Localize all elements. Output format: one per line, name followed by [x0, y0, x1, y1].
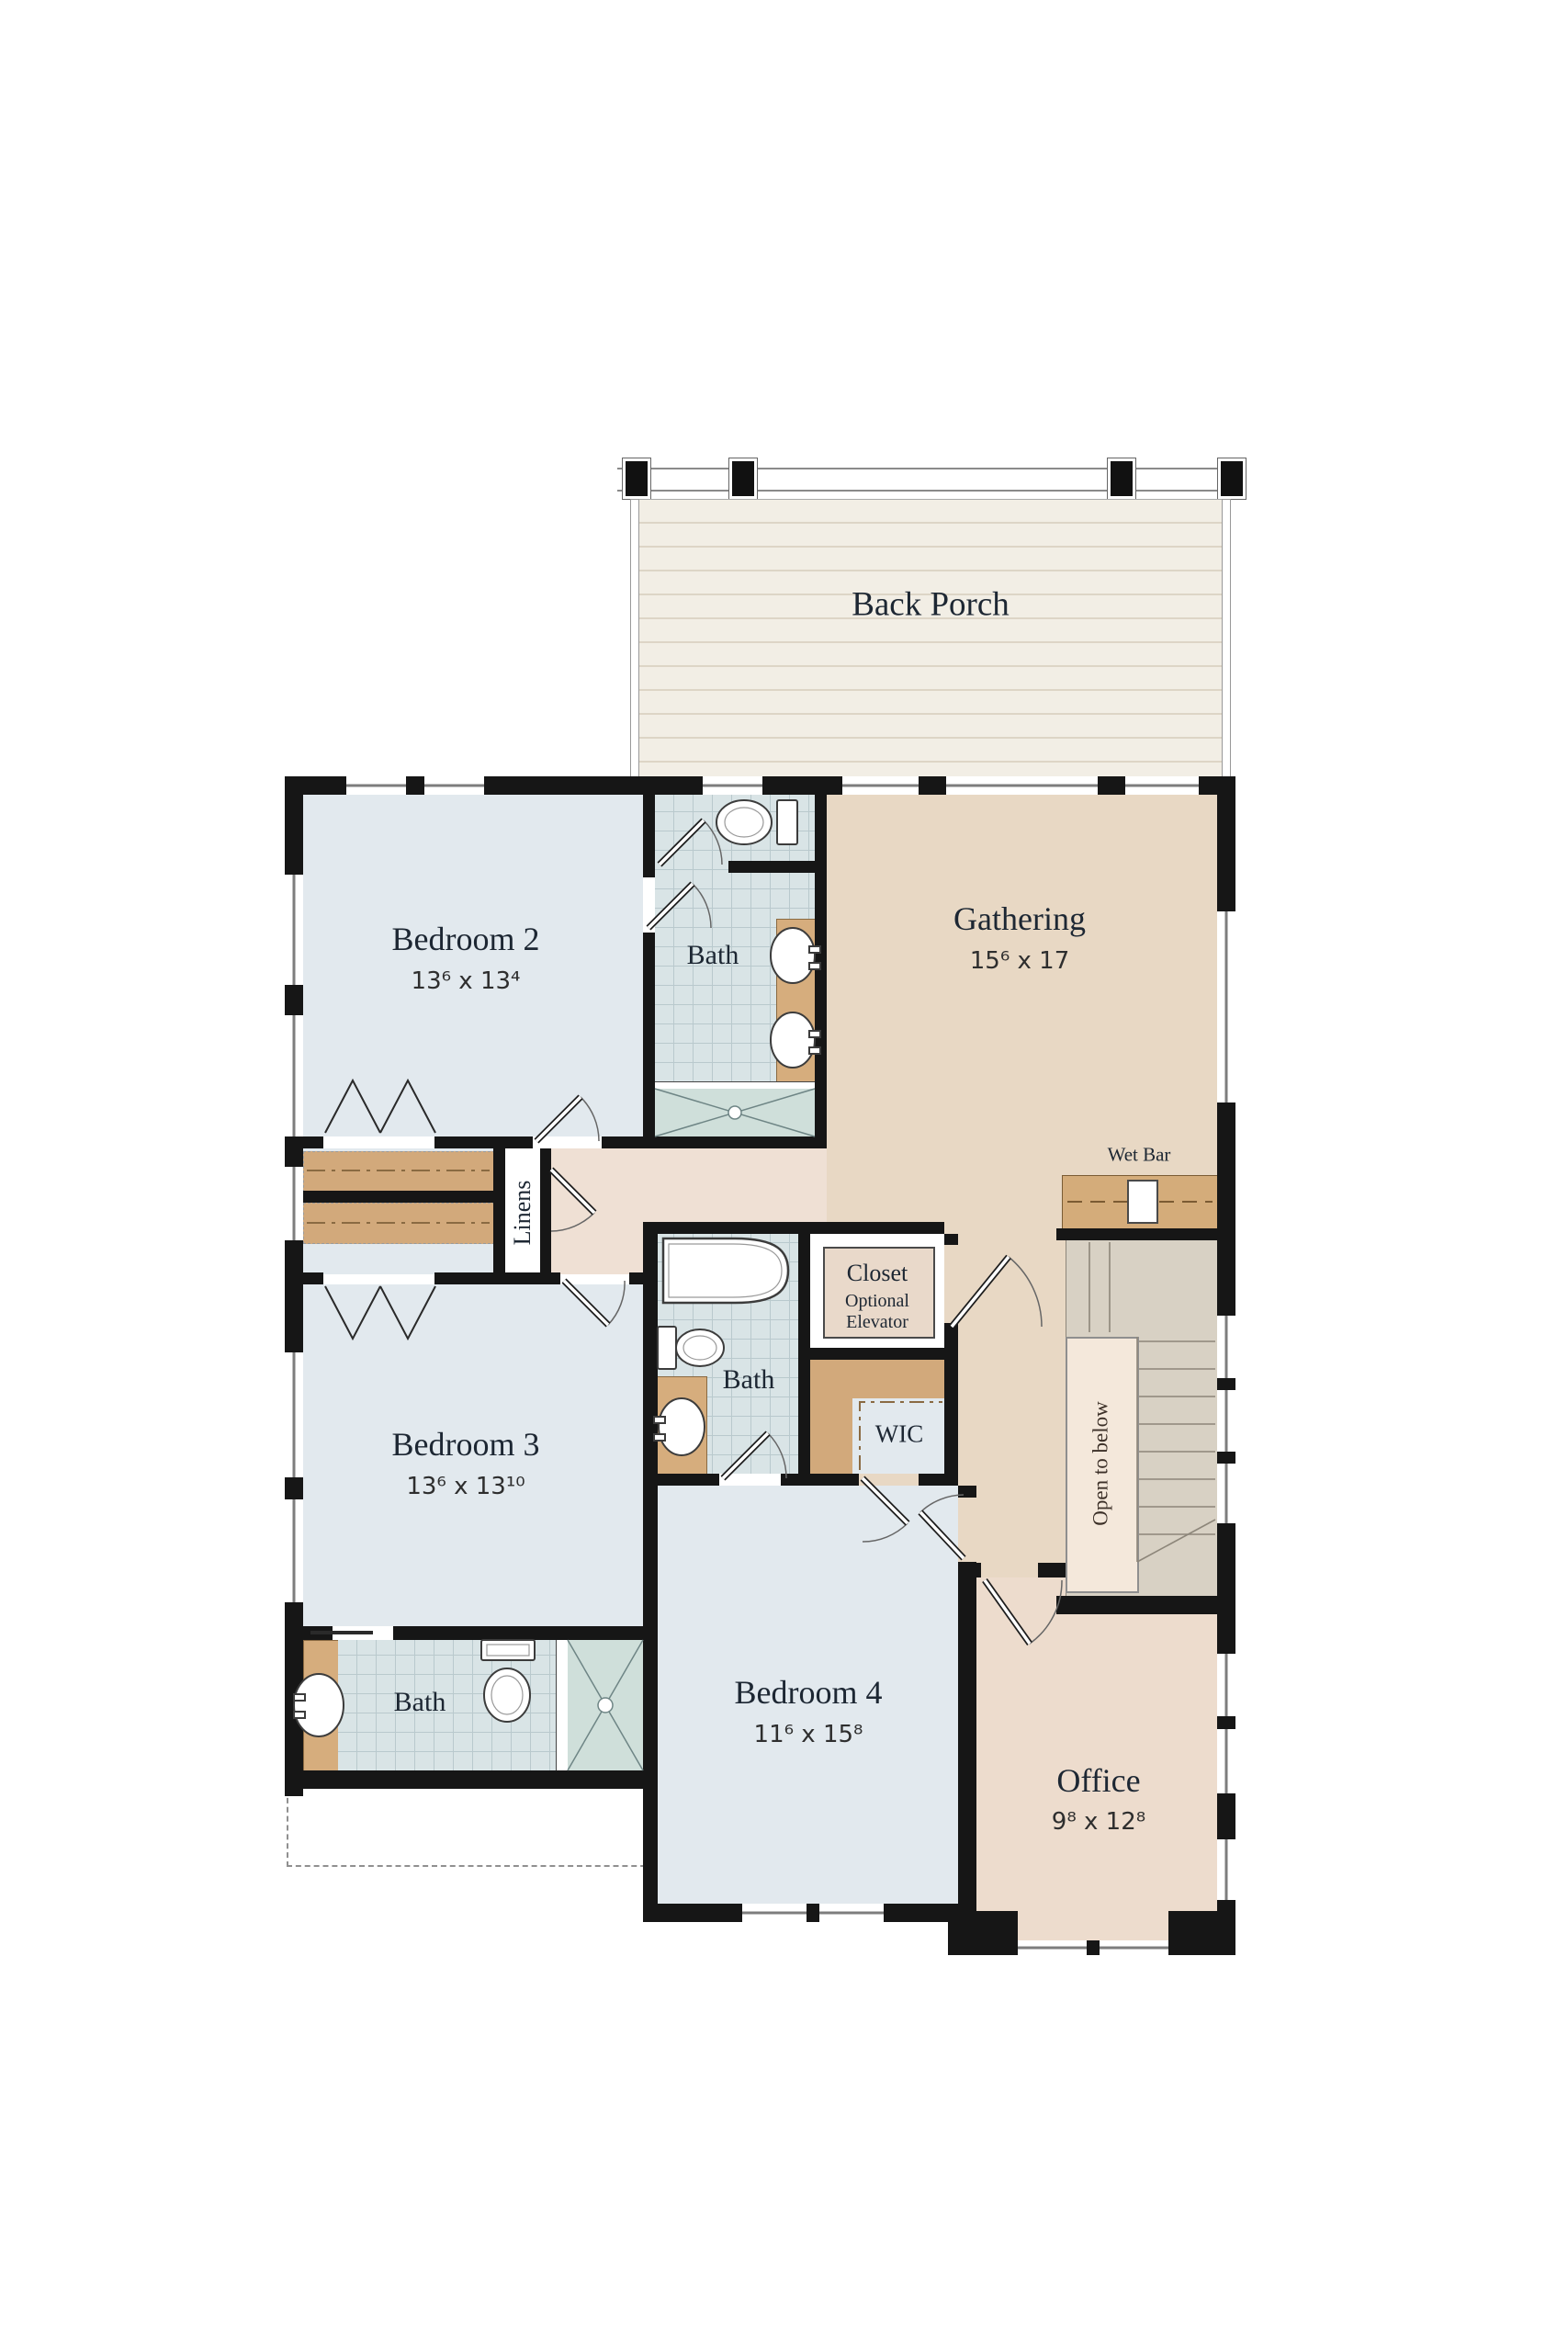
- window: [703, 776, 762, 795]
- wall-segment: [958, 1563, 981, 1577]
- wall-segment: [810, 1348, 944, 1360]
- wall-segment: [798, 1234, 810, 1474]
- porch-post: [729, 458, 757, 499]
- window: [285, 1015, 303, 1139]
- wall-segment: [406, 776, 424, 795]
- wall-segment: [393, 1626, 655, 1640]
- wall-segment: [1087, 1940, 1100, 1955]
- window: [1125, 776, 1199, 795]
- bath-middle-label: Bath: [723, 1366, 775, 1394]
- wall-segment: [1038, 1563, 1066, 1577]
- window: [346, 776, 406, 795]
- wall-segment: [643, 933, 655, 1136]
- wall-segment: [643, 1222, 944, 1234]
- wall-segment: [602, 1136, 827, 1148]
- wall-segment: [728, 861, 827, 873]
- wall-segment: [1168, 1911, 1235, 1955]
- bath-upper-label: Bath: [687, 942, 739, 969]
- bath-upper-vanity: [776, 919, 817, 1083]
- back-porch-label: Back Porch: [852, 588, 1010, 622]
- wic-label: WIC: [875, 1422, 923, 1447]
- window: [1018, 1940, 1087, 1955]
- wall-segment: [285, 1626, 333, 1640]
- window: [285, 1167, 303, 1240]
- wall-segment: [1217, 1452, 1235, 1464]
- wall-segment: [285, 985, 303, 1015]
- open-to-below-label: Open to below: [1090, 1401, 1111, 1525]
- wall-segment: [944, 1234, 958, 1245]
- hall: [551, 1148, 827, 1222]
- window: [819, 1904, 884, 1922]
- wall-segment: [303, 1191, 493, 1203]
- wet-bar-label: Wet Bar: [1108, 1146, 1171, 1165]
- bath-middle-vanity: [655, 1376, 707, 1476]
- wall-segment: [434, 1272, 560, 1284]
- window: [285, 1499, 303, 1602]
- bedroom2-dims: 13⁶ x 13⁴: [412, 969, 521, 993]
- porch-rail-right: [1222, 499, 1231, 778]
- wall-segment: [285, 1477, 303, 1499]
- wall-segment: [658, 1474, 719, 1486]
- bedroom4-dims: 11⁶ x 15⁸: [754, 1723, 863, 1747]
- wall-segment: [285, 776, 303, 875]
- wall-segment: [484, 776, 595, 795]
- wall-segment: [493, 1148, 505, 1274]
- wall-segment: [1217, 1238, 1235, 1316]
- closet-note-line2: Elevator: [846, 1313, 908, 1331]
- wall-segment: [643, 795, 655, 877]
- wall-segment: [285, 1770, 655, 1789]
- hall: [551, 1222, 643, 1274]
- wic-shelf: [852, 1360, 944, 1398]
- bath-lower-floor: [338, 1640, 556, 1770]
- window: [1217, 1316, 1235, 1378]
- window: [1217, 911, 1235, 1102]
- gathering-label: Gathering: [953, 902, 1086, 935]
- wall-segment: [285, 1136, 323, 1148]
- bedroom2-closet-rod: [303, 1151, 495, 1193]
- bath-lower-shower: [568, 1640, 643, 1770]
- wall-segment: [285, 1240, 303, 1352]
- wall-segment: [807, 1904, 819, 1922]
- wall-segment: [919, 776, 946, 795]
- bath-lower-vanity: [303, 1640, 340, 1772]
- wall-segment: [540, 1148, 551, 1274]
- wall-segment: [762, 776, 842, 795]
- pocket-door-opening: [333, 1626, 393, 1640]
- roof-outline-dashed: [287, 1789, 655, 1867]
- office-room: [976, 1577, 1217, 1940]
- office-label: Office: [1056, 1764, 1140, 1797]
- linens-label: Linens: [511, 1181, 535, 1246]
- wall-segment: [815, 795, 827, 1136]
- window: [1217, 1390, 1235, 1452]
- wall-segment: [1056, 1228, 1217, 1240]
- wall-segment: [1217, 1793, 1235, 1839]
- wall-segment: [958, 1486, 976, 1498]
- wall-segment: [1217, 1716, 1235, 1729]
- closet-label: Closet: [847, 1261, 908, 1285]
- floor-plan: Back Porch Bedroom 2 13⁶ x 13⁴ Bath Gath…: [0, 0, 1568, 2352]
- bedroom3-dims: 13⁶ x 13¹⁰: [406, 1475, 525, 1498]
- porch-rail-left: [630, 499, 639, 778]
- wall-segment: [1217, 1102, 1235, 1238]
- wic-shelf: [810, 1360, 852, 1474]
- porch-beam: [617, 468, 1246, 492]
- wall-segment: [1056, 1596, 1235, 1614]
- bath-upper-shower: [655, 1089, 815, 1136]
- wall-segment: [1098, 776, 1125, 795]
- window: [1217, 1839, 1235, 1900]
- wall-segment: [1217, 776, 1235, 911]
- wet-bar-counter: [1062, 1175, 1219, 1230]
- window: [1217, 1729, 1235, 1793]
- closet-note-line1: Optional: [845, 1292, 909, 1310]
- wall-segment: [1217, 1378, 1235, 1390]
- office-dims: 9⁸ x 12⁸: [1052, 1810, 1145, 1834]
- bedroom3-label: Bedroom 3: [392, 1428, 540, 1461]
- wall-segment: [958, 1562, 976, 1955]
- window: [1217, 1464, 1235, 1523]
- window: [1217, 1654, 1235, 1716]
- porch-post: [623, 458, 650, 499]
- bedroom2-room: [303, 795, 643, 1136]
- bedroom2-label: Bedroom 2: [392, 922, 540, 955]
- bedroom3-closet-rod: [303, 1203, 495, 1244]
- window: [424, 776, 484, 795]
- wall-segment: [944, 1323, 958, 1486]
- bath-lower-label: Bath: [394, 1689, 446, 1716]
- back-porch-deck: [630, 499, 1231, 778]
- wall-segment: [643, 1904, 742, 1922]
- wall-segment: [434, 1136, 533, 1148]
- wall-segment: [643, 1222, 658, 1922]
- window: [1100, 1940, 1168, 1955]
- window: [946, 776, 1098, 795]
- wall-segment: [919, 1474, 958, 1486]
- window: [285, 1352, 303, 1477]
- gathering-dims: 15⁶ x 17: [970, 949, 1070, 973]
- wall-segment: [285, 1272, 323, 1284]
- window: [742, 1904, 807, 1922]
- window: [842, 776, 919, 795]
- porch-post: [1108, 458, 1135, 499]
- wall-segment: [595, 776, 703, 795]
- porch-post: [1218, 458, 1246, 499]
- wall-segment: [781, 1474, 859, 1486]
- window: [285, 875, 303, 985]
- bedroom4-label: Bedroom 4: [735, 1676, 883, 1709]
- wall-segment: [1217, 1523, 1235, 1654]
